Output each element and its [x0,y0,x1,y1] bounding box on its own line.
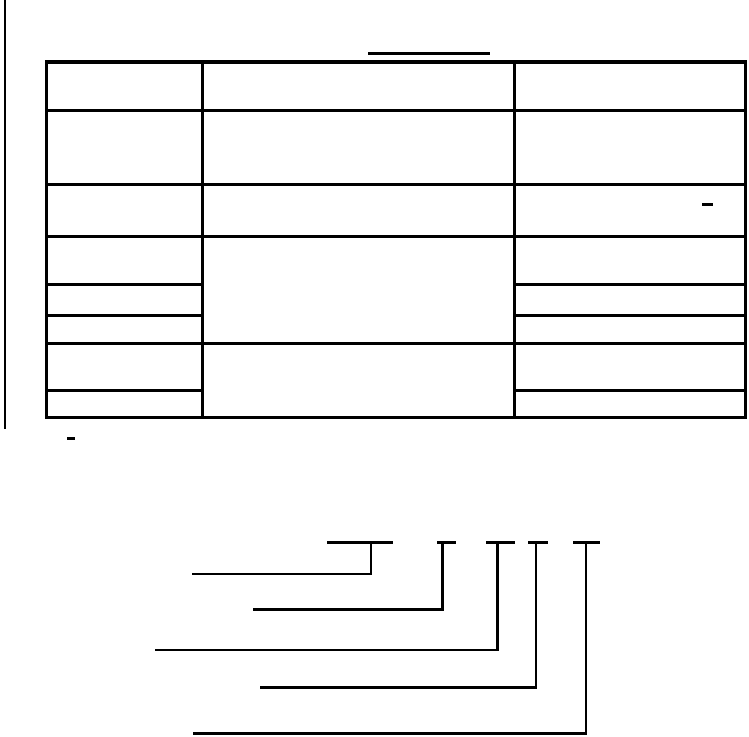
callout5-overline [573,541,600,544]
table-row-divider-right-b [513,314,747,317]
table-title-underline-layer [0,0,749,737]
table-row-divider-left-b [45,314,204,317]
callout2-drop-line [441,541,444,611]
page-left-margin-rule [4,0,6,429]
table-row-divider-full-2 [45,183,747,186]
callout3-drop-line [496,541,499,651]
table-row-divider-left-a [45,283,204,286]
callout5-drop-line [585,541,588,735]
callout4-drop-line [535,541,538,689]
footnote-dash-below-table [67,437,75,440]
page-margin-rule-layer [0,0,749,737]
table-column-divider-1 [201,60,204,419]
table-cell-dash-row3-right [702,203,713,206]
table-row-divider-full-1 [45,109,747,112]
callout1-overline [327,541,393,544]
table-column-divider-2 [513,60,516,419]
table-outer-border-bottom [45,416,747,419]
dash-marks-layer [0,0,749,737]
callout3-overline [486,541,515,544]
callout4-leader-line [260,686,537,689]
callout1-drop-line [370,541,373,575]
table-row-divider-full-3 [45,235,747,238]
callout4-overline [528,541,548,544]
table-outer-border-right [744,60,747,419]
table-outer-border-left [45,60,48,419]
document-page [0,0,749,737]
spec-table [0,0,749,737]
table-row-divider-right-a [513,283,747,286]
callout2-overline [437,541,456,544]
part-number-callout-diagram [0,0,749,737]
callout2-leader-line [253,608,444,611]
table-row-divider-right-c [513,389,747,392]
table-row-divider-full-4 [45,342,747,345]
table-outer-border-top [45,60,747,64]
callout1-leader-line [192,573,372,576]
table-title-underline [368,52,490,55]
callout3-leader-line [155,649,499,652]
table-row-divider-left-c [45,389,204,392]
callout5-leader-line [193,732,587,735]
